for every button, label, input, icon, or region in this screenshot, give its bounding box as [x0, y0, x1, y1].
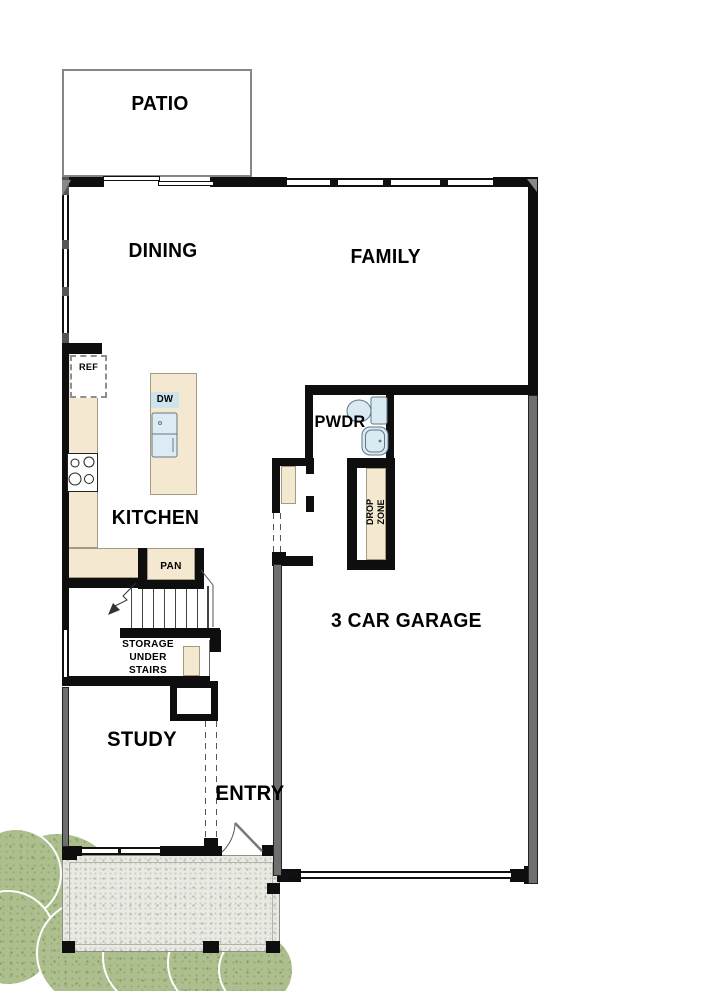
wall-segment [347, 458, 357, 570]
kitchen-counter [68, 548, 142, 578]
wall-segment [272, 458, 280, 513]
wall-segment [62, 578, 142, 588]
room-label-family: FAMILY [350, 246, 419, 269]
window-mullion [330, 178, 338, 187]
wall-segment [347, 560, 395, 570]
wall-segment [195, 548, 204, 584]
window [82, 847, 160, 855]
wall-segment [306, 496, 314, 512]
room-label-garage: 3 CAR GARAGE [331, 610, 477, 633]
porch-post [203, 941, 219, 953]
window-mullion [62, 240, 69, 249]
window [62, 195, 69, 333]
study-exterior-wall [62, 687, 69, 847]
window-mullion [383, 178, 391, 187]
sliding-door-panel [158, 181, 214, 186]
wall-post [62, 177, 69, 195]
window-mullion [118, 847, 121, 855]
porch-beam-line [69, 862, 273, 945]
window-mullion [440, 178, 448, 187]
sliding-door-panel [103, 176, 160, 181]
wall-segment [305, 385, 538, 395]
entry-door-swing [222, 823, 262, 852]
room-label-kitchen: KITCHEN [112, 507, 196, 530]
wall-segment [305, 385, 313, 460]
entry-porch [62, 855, 280, 952]
wall-segment [386, 391, 394, 466]
garage-wall [273, 564, 282, 876]
room-label-study: STUDY [106, 728, 179, 752]
garage-door [301, 871, 511, 879]
window [62, 630, 69, 677]
entry-closet-interior [177, 688, 211, 714]
range-icon [67, 453, 98, 492]
label-refrigerator: REF [71, 362, 107, 373]
room-label-entry: ENTRY [215, 782, 284, 806]
label-drop-zone: DROP ZONE [364, 481, 388, 543]
label-storage-under-stairs: STORAGE UNDER STAIRS [106, 638, 190, 677]
wall-segment [306, 458, 314, 474]
room-label-dining: DINING [127, 240, 198, 263]
porch-post [266, 941, 280, 953]
window-mullion [62, 287, 69, 296]
label-pantry: PAN [148, 560, 194, 572]
garage-wall [528, 395, 538, 884]
porch-post [62, 941, 75, 953]
floor-plan: PATIO DINING FAMILY PWDR KITCHEN 3 CAR G… [0, 0, 711, 991]
room-label-patio: PATIO [112, 93, 208, 116]
porch-post [267, 883, 280, 894]
wall-segment [210, 630, 221, 652]
closet-shelf [281, 466, 296, 504]
wall-post [62, 333, 69, 343]
room-label-powder: PWDR [313, 412, 367, 432]
label-dishwasher: DW [152, 394, 179, 405]
wall-segment [120, 628, 220, 638]
wall-segment [62, 343, 102, 354]
wall-segment [138, 580, 204, 589]
wall-segment [210, 177, 287, 187]
wall-segment [62, 846, 82, 856]
wall-segment [528, 177, 538, 395]
wall-segment [160, 846, 222, 856]
patio-outline [62, 69, 252, 177]
staircase [131, 586, 211, 628]
